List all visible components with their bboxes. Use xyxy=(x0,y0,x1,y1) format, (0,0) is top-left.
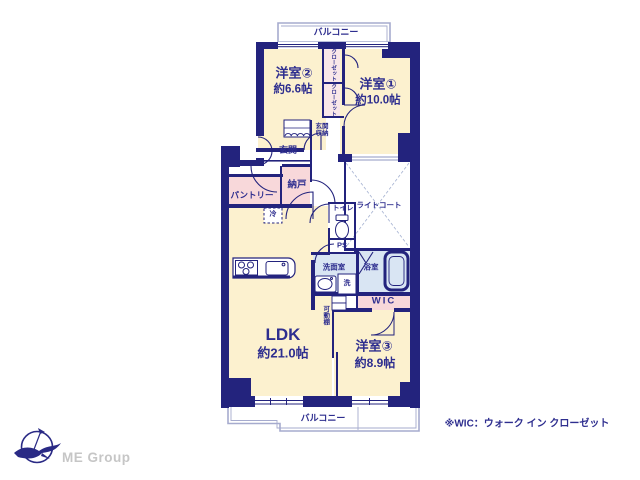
genkan-storage-label: 玄関収納 xyxy=(315,123,330,137)
balcony-top-label: バルコニー xyxy=(314,27,359,37)
ldk-size-label: 約21.0帖 xyxy=(257,347,308,362)
wic-label: WIC xyxy=(372,297,396,308)
floor-plan-page: バルコニー 洋室② 約6.6帖 洋室① 約10.0帖 クローゼット クローゼット… xyxy=(0,0,640,480)
toilet-label: トイレ xyxy=(333,205,354,213)
stove-icon xyxy=(236,261,258,276)
logo-text: ME Group xyxy=(62,450,131,466)
logo-bird-icon xyxy=(14,428,61,463)
ldk-name-label: LDK xyxy=(266,325,301,345)
wic-note: ※WIC：ウォーク イン クローゼット xyxy=(445,418,610,430)
balcony-bottom-label: バルコニー xyxy=(301,413,346,423)
genkan-label: 玄関 xyxy=(279,145,297,155)
room1-name-label: 洋室① xyxy=(359,78,396,93)
room2-name-label: 洋室② xyxy=(275,67,312,82)
closet-upper-label: クローゼット xyxy=(330,49,336,82)
room3-size-label: 約8.9帖 xyxy=(355,357,396,371)
bath-label: 浴室 xyxy=(364,264,379,273)
fridge-label: 冷 xyxy=(270,211,277,219)
washstand-icon xyxy=(315,276,336,292)
closet-lower-label: クローゼット xyxy=(330,84,336,117)
kitchen-counter xyxy=(233,258,295,279)
room1-size-label: 約10.0帖 xyxy=(355,94,400,107)
room3-name-label: 洋室③ xyxy=(355,340,392,355)
movable-shelf-label: 可動棚 xyxy=(321,305,328,325)
light-court-label: ライトコート xyxy=(357,202,402,211)
movable-shelves xyxy=(332,296,346,310)
toilet-icon xyxy=(336,215,349,239)
genkan-storage-cabinet xyxy=(284,120,310,137)
pantry-label: パントリー xyxy=(231,191,274,201)
nando-label: 納戸 xyxy=(287,181,306,192)
bathtub-icon xyxy=(385,252,408,290)
washer-label: 洗 xyxy=(344,280,351,288)
ldk-floor xyxy=(228,206,332,398)
washroom-label: 洗面室 xyxy=(323,264,346,273)
floor-plan-drawing xyxy=(0,0,640,480)
room2-size-label: 約6.6帖 xyxy=(274,83,313,96)
ps-label: PS xyxy=(337,242,347,251)
